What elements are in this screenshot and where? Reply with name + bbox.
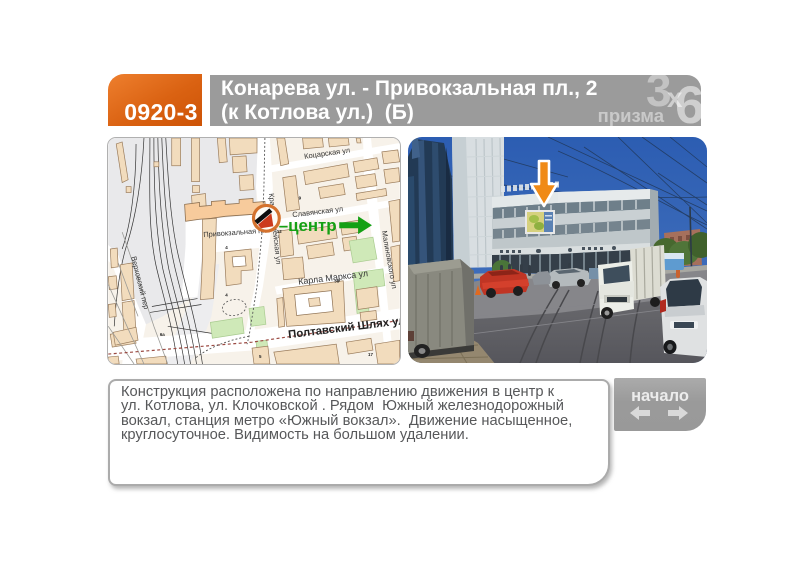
svg-text:6а: 6а: [160, 332, 165, 337]
svg-text:–центр: –центр: [279, 216, 337, 235]
svg-text:17: 17: [368, 352, 373, 357]
